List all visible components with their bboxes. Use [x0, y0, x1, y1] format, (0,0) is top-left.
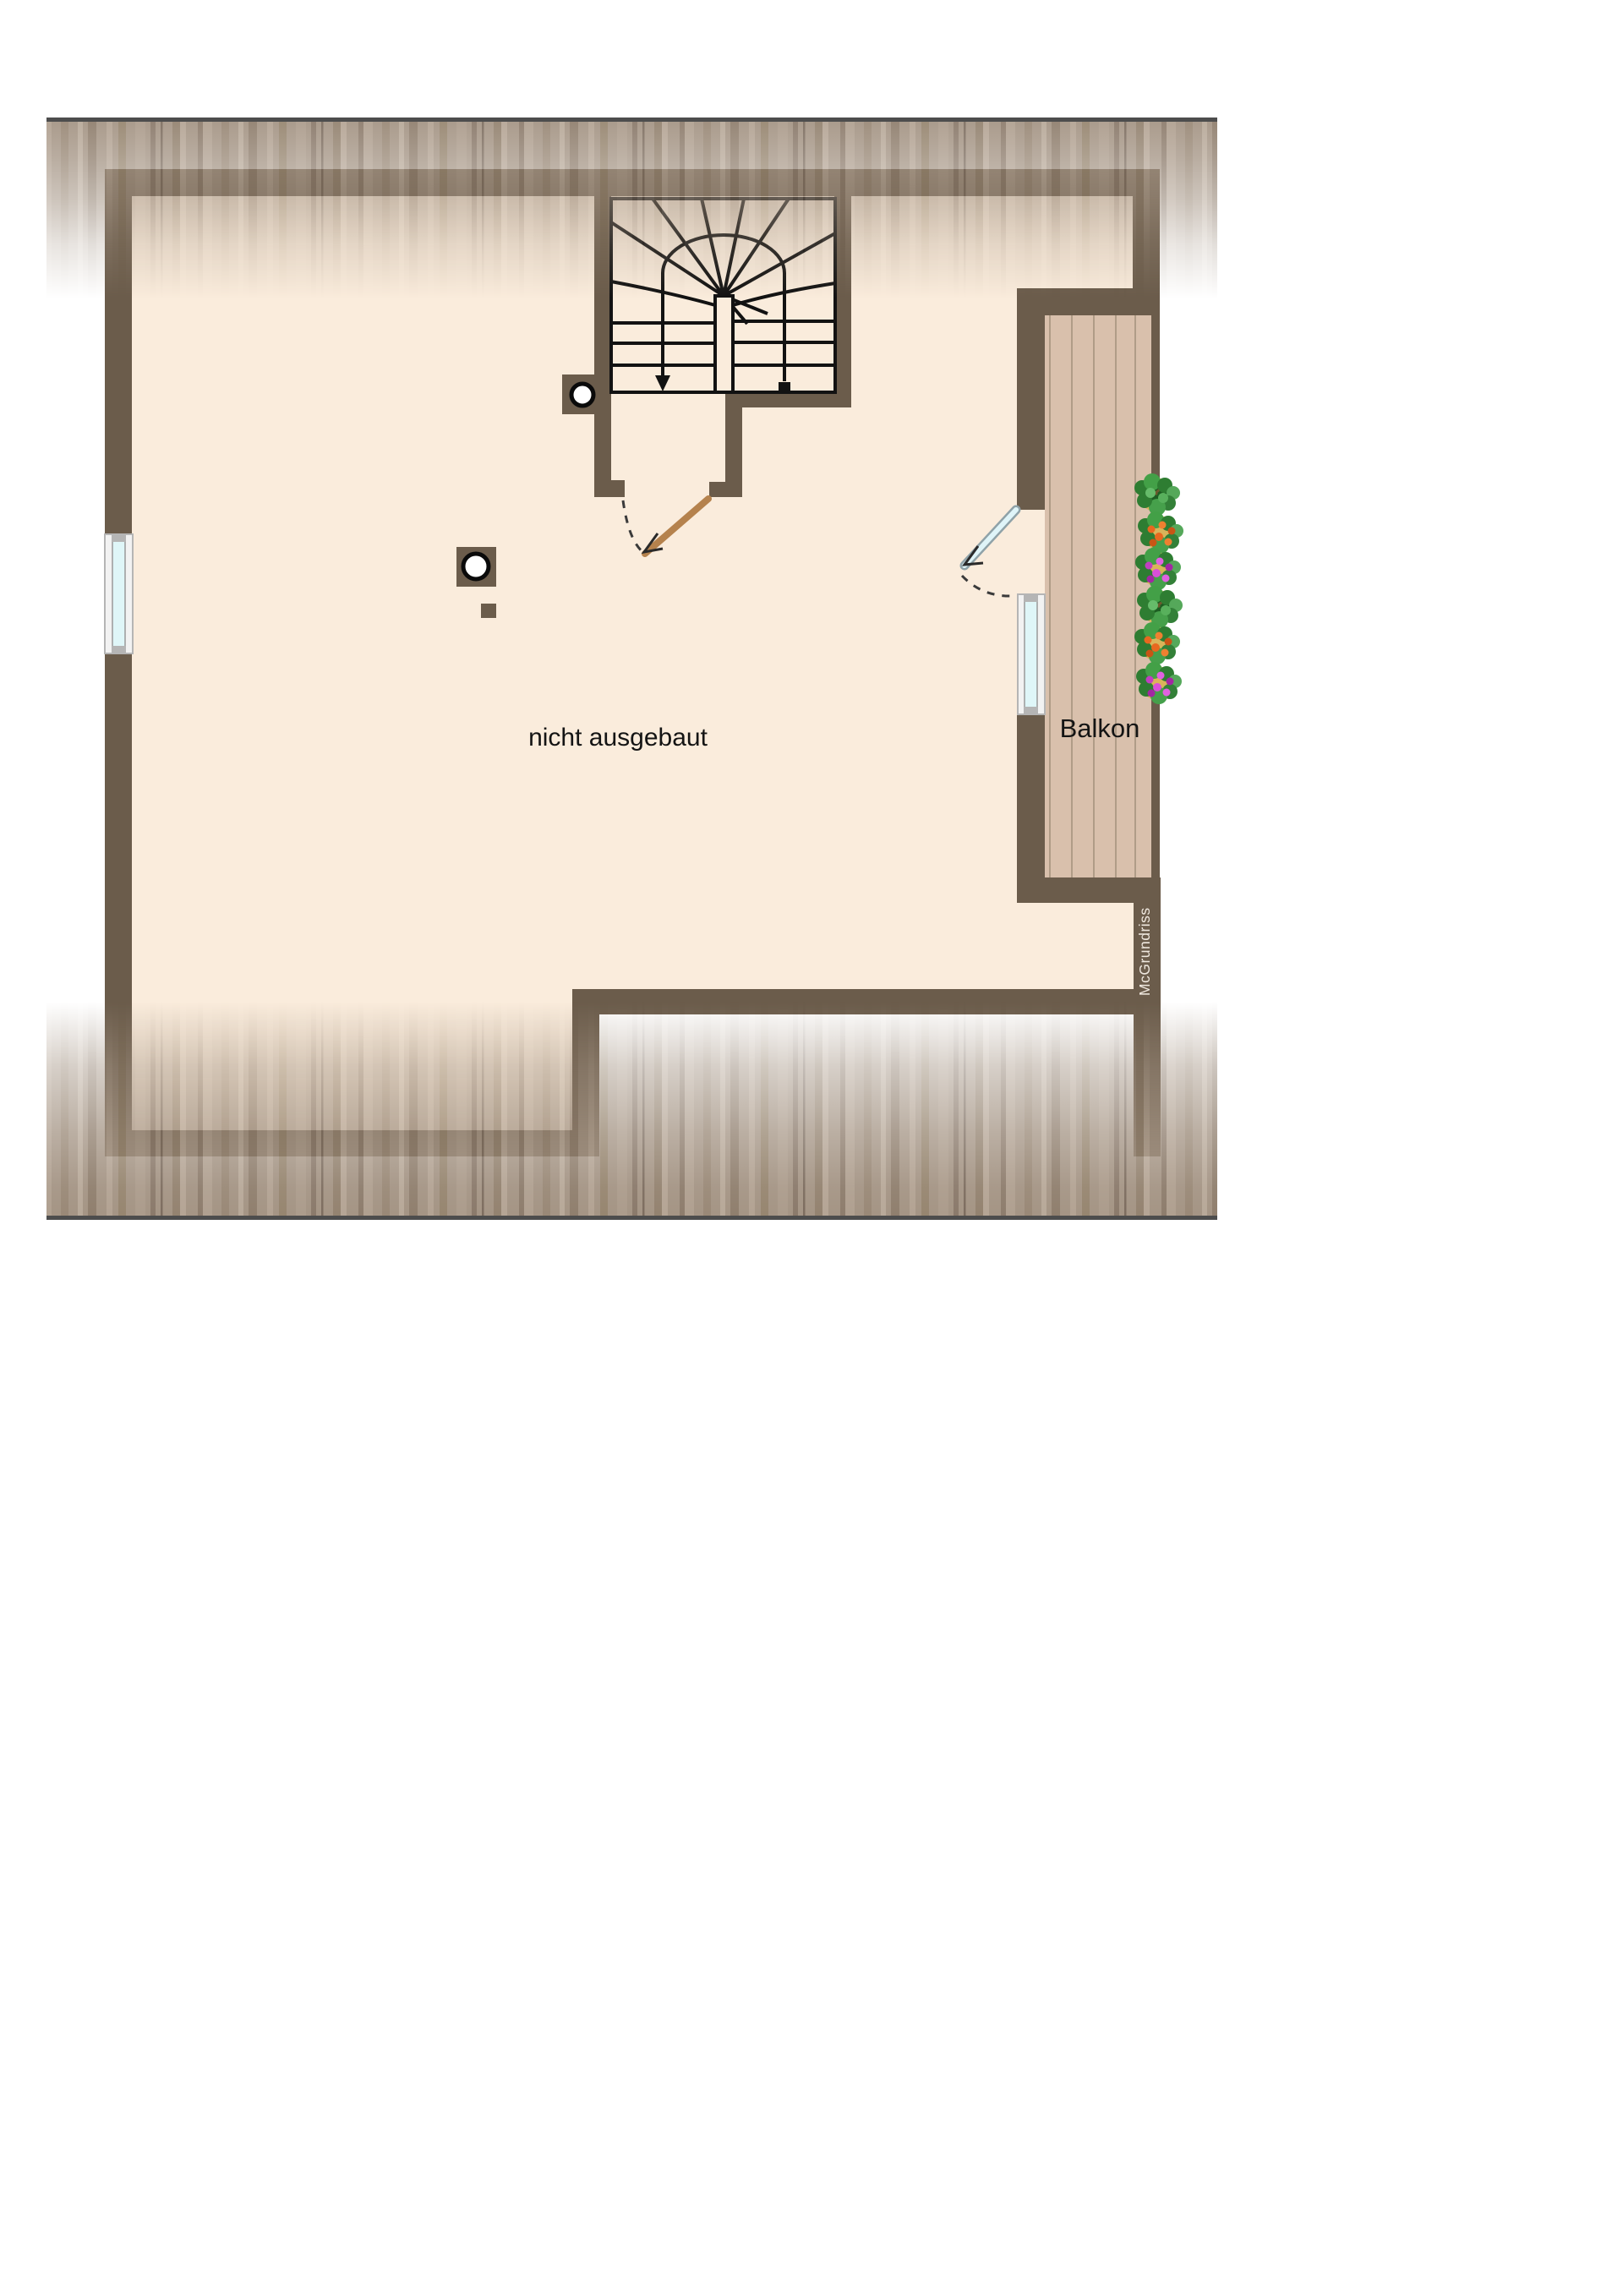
wall-balcony-left-upper [1017, 315, 1045, 510]
balcony-door-opening [1017, 510, 1045, 594]
stair-newel [715, 296, 733, 392]
chimney-flue-1 [571, 384, 593, 406]
roof-ridge-line-top [46, 118, 1217, 122]
balcony-label: Balkon [1032, 713, 1167, 744]
chimney-flue-2 [463, 554, 489, 579]
stair-start-marker [779, 382, 790, 392]
floor-plan-drawing [0, 0, 1623, 2296]
roof-ridge-line-bottom [46, 1216, 1217, 1220]
floor-plan-page: nicht ausgebaut Balkon McGrundriss [0, 0, 1623, 2296]
window-balcony [1018, 594, 1045, 714]
chimney-pillar [481, 604, 496, 618]
room-label: nicht ausgebaut [495, 723, 740, 753]
wall-stair-left-jamb [611, 480, 625, 497]
window-left [105, 534, 133, 653]
balcony-deck [1045, 315, 1151, 877]
roof-hatch-top [46, 118, 1217, 299]
wall-stair-right-jamb [709, 482, 725, 497]
wall-stair-lower-right [725, 407, 742, 497]
watermark-label: McGrundriss [1134, 894, 1155, 996]
roof-hatch-bottom [46, 1002, 1217, 1220]
